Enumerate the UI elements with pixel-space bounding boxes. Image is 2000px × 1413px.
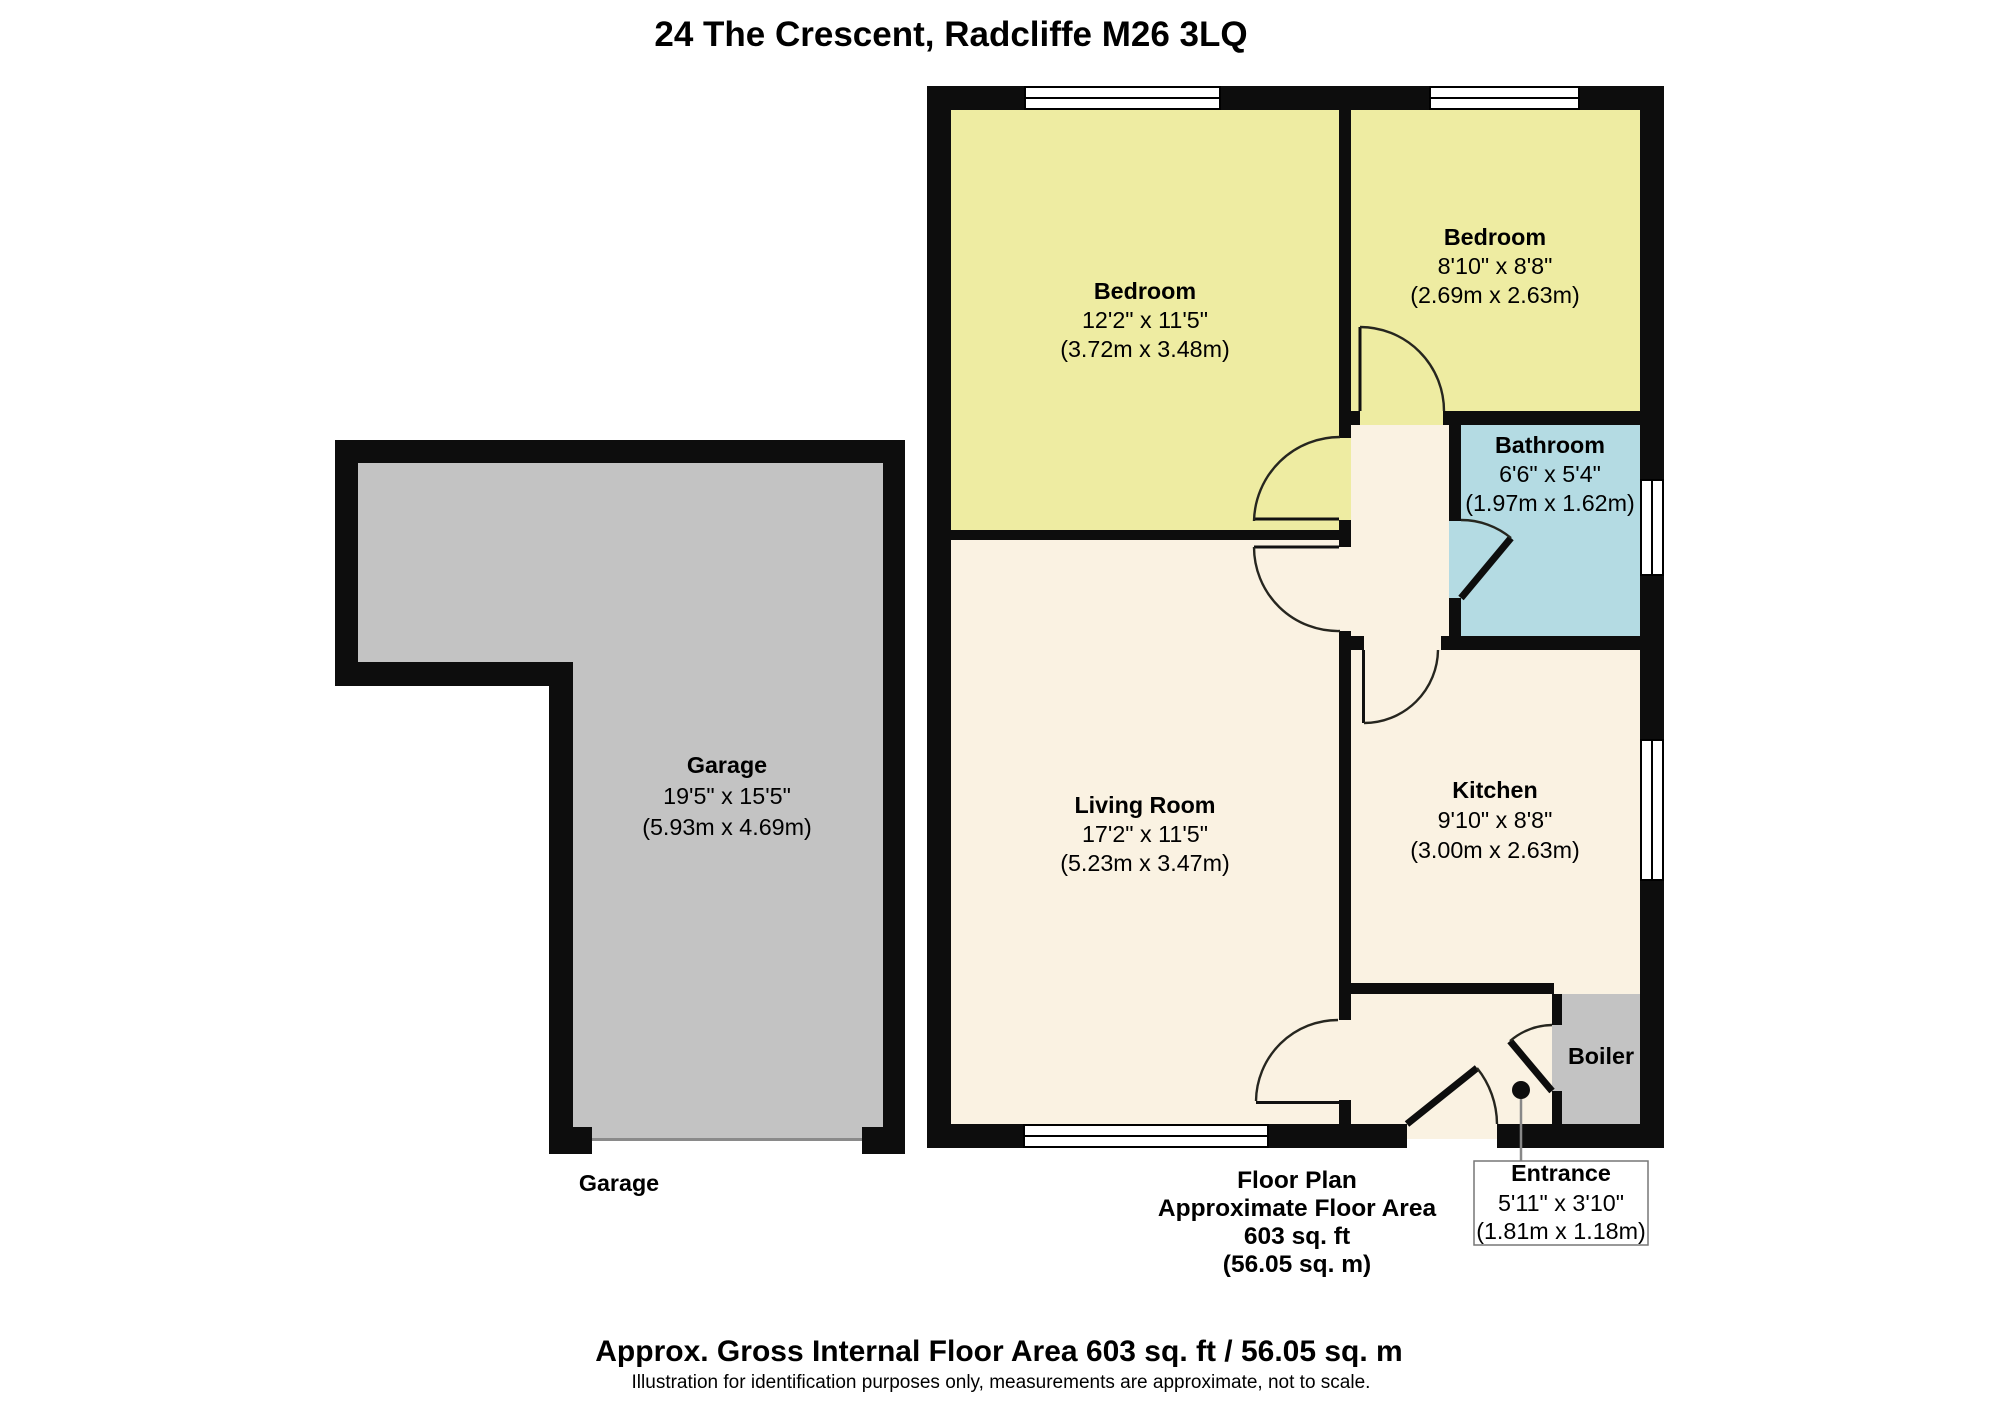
svg-text:Boiler: Boiler bbox=[1568, 1043, 1634, 1069]
svg-text:Approximate Floor Area: Approximate Floor Area bbox=[1158, 1195, 1437, 1222]
svg-text:(5.23m x 3.47m): (5.23m x 3.47m) bbox=[1060, 850, 1230, 876]
svg-text:Bathroom: Bathroom bbox=[1495, 432, 1605, 458]
svg-text:Approx. Gross Internal Floor A: Approx. Gross Internal Floor Area 603 sq… bbox=[595, 1335, 1402, 1368]
svg-text:17'2" x 11'5": 17'2" x 11'5" bbox=[1082, 821, 1208, 847]
svg-text:(3.00m x 2.63m): (3.00m x 2.63m) bbox=[1410, 837, 1580, 863]
svg-text:(5.93m x 4.69m): (5.93m x 4.69m) bbox=[642, 814, 812, 840]
svg-text:Bedroom: Bedroom bbox=[1094, 278, 1196, 304]
svg-text:5'11" x 3'10": 5'11" x 3'10" bbox=[1498, 1190, 1624, 1216]
svg-text:Garage: Garage bbox=[687, 752, 767, 778]
svg-text:(1.81m x 1.18m): (1.81m x 1.18m) bbox=[1476, 1218, 1646, 1244]
svg-text:(1.97m x 1.62m): (1.97m x 1.62m) bbox=[1465, 490, 1635, 516]
svg-text:Entrance: Entrance bbox=[1511, 1160, 1611, 1186]
svg-text:Illustration for identificatio: Illustration for identification purposes… bbox=[632, 1372, 1371, 1393]
svg-text:(2.69m x 2.63m): (2.69m x 2.63m) bbox=[1410, 282, 1580, 308]
svg-text:24 The Crescent, Radcliffe M26: 24 The Crescent, Radcliffe M26 3LQ bbox=[654, 15, 1247, 54]
svg-text:6'6" x 5'4": 6'6" x 5'4" bbox=[1499, 461, 1601, 487]
svg-text:Bedroom: Bedroom bbox=[1444, 224, 1546, 250]
svg-text:12'2" x 11'5": 12'2" x 11'5" bbox=[1082, 307, 1208, 333]
svg-text:19'5" x 15'5": 19'5" x 15'5" bbox=[663, 783, 791, 809]
svg-text:603 sq. ft: 603 sq. ft bbox=[1244, 1223, 1350, 1250]
svg-text:Kitchen: Kitchen bbox=[1452, 777, 1537, 803]
svg-text:Living Room: Living Room bbox=[1074, 792, 1215, 818]
svg-text:9'10" x 8'8": 9'10" x 8'8" bbox=[1438, 807, 1553, 833]
svg-text:(56.05 sq. m): (56.05 sq. m) bbox=[1223, 1251, 1371, 1278]
svg-text:8'10" x 8'8": 8'10" x 8'8" bbox=[1438, 253, 1553, 279]
svg-text:Floor Plan: Floor Plan bbox=[1237, 1167, 1357, 1194]
svg-text:Garage: Garage bbox=[579, 1170, 659, 1196]
svg-text:(3.72m x 3.48m): (3.72m x 3.48m) bbox=[1060, 336, 1230, 362]
